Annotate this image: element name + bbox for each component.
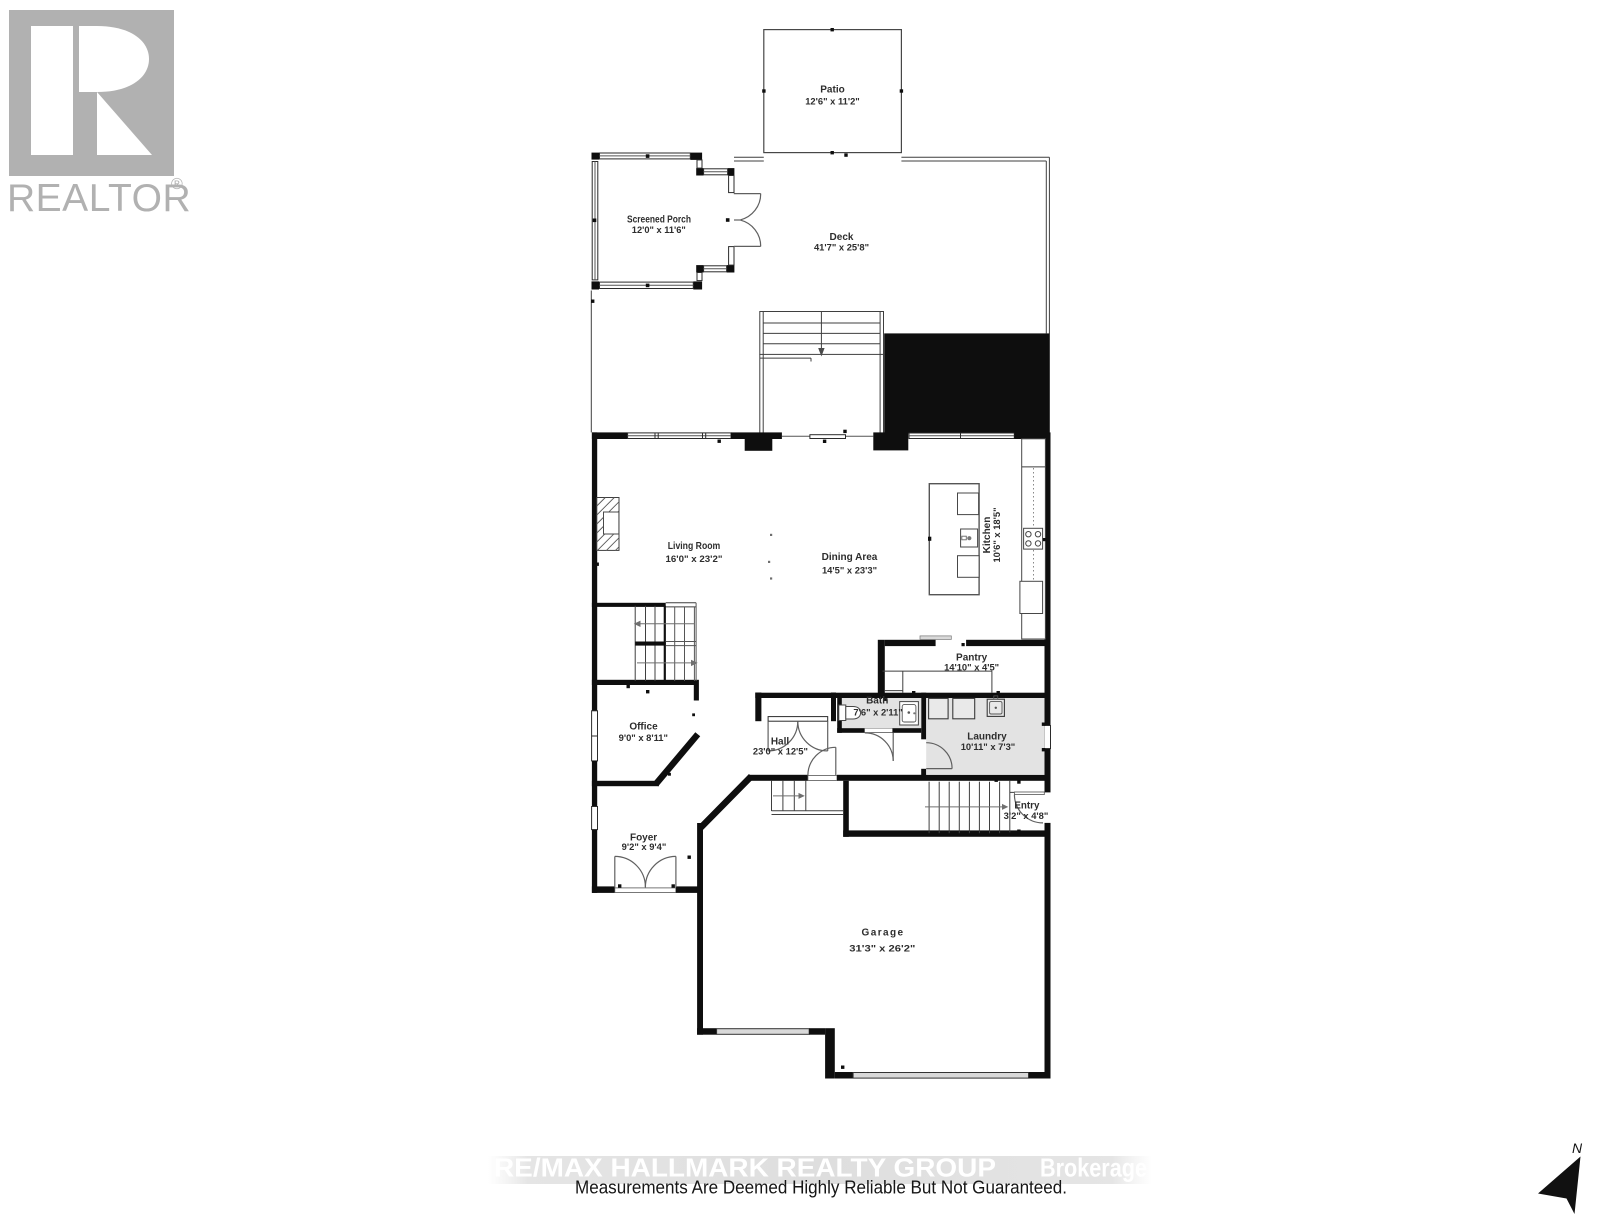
svg-text:Patio: Patio [820,85,844,96]
svg-text:41'7" x 25'8": 41'7" x 25'8" [814,242,869,253]
svg-text:10'11" x 7'3": 10'11" x 7'3" [961,741,1016,752]
svg-text:Living Room: Living Room [668,541,721,552]
svg-text:10'6" x 18'5": 10'6" x 18'5" [991,507,1002,562]
svg-text:Office: Office [629,722,658,733]
svg-text:Dining Area: Dining Area [822,552,878,563]
svg-text:7'6" x 2'11": 7'6" x 2'11" [853,707,902,718]
svg-text:23'0" x 12'5": 23'0" x 12'5" [753,746,808,757]
svg-text:Garage: Garage [862,928,904,939]
svg-text:9'0" x 8'11": 9'0" x 8'11" [619,732,668,743]
svg-text:31'3" x 26'2": 31'3" x 26'2" [849,943,915,954]
svg-text:N: N [1572,1140,1583,1156]
svg-text:14'5" x 23'3": 14'5" x 23'3" [822,565,877,576]
svg-text:14'10" x 4'5": 14'10" x 4'5" [944,662,999,673]
svg-text:REALTOR: REALTOR [7,177,191,220]
svg-text:12'6" x 11'2": 12'6" x 11'2" [805,96,860,107]
svg-text:®: ® [171,176,183,193]
svg-text:16'0" x 23'2": 16'0" x 23'2" [666,553,723,564]
svg-text:Measurements Are Deemed Highly: Measurements Are Deemed Highly Reliable … [575,1177,1067,1198]
svg-text:Bath: Bath [866,696,888,707]
svg-text:12'0" x 11'6": 12'0" x 11'6" [632,224,686,235]
svg-text:3'2" x 4'8": 3'2" x 4'8" [1004,810,1049,821]
svg-text:9'2" x 9'4": 9'2" x 9'4" [622,841,667,852]
